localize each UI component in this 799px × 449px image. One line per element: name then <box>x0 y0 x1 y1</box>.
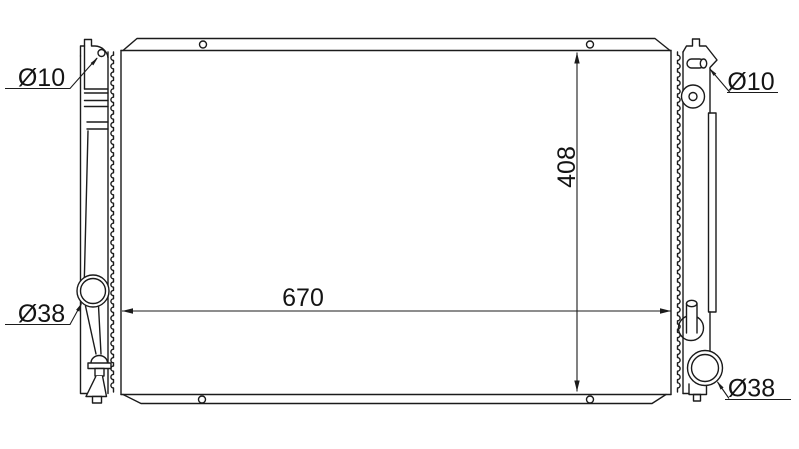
right-tank <box>679 39 723 401</box>
callout-port-bottom-left: Ø38 <box>5 300 82 328</box>
dim-height-arrow-top <box>574 53 579 64</box>
pipe-top-right-opening <box>700 59 706 68</box>
radiator-diagram: 670 408 Ø10 Ø10 Ø38 Ø38 <box>0 0 799 449</box>
left-crimp-edge <box>108 52 114 394</box>
mount-hole-top-right <box>587 41 594 48</box>
left-tank-molding-line <box>84 131 88 292</box>
bleed-hole-top-left <box>98 50 105 57</box>
mount-hole-bottom-right <box>587 396 594 403</box>
port-bottom-right-label: Ø38 <box>728 375 775 403</box>
bottom-flange <box>121 395 671 404</box>
left-drain-tube-lines <box>86 306 102 354</box>
mount-hole-bottom-left <box>199 396 206 403</box>
dim-width-arrow-right <box>660 308 671 313</box>
right-crimp-teeth <box>678 52 681 392</box>
radiator-drawing: 670 408 Ø10 Ø10 Ø38 Ø38 <box>0 0 799 449</box>
port-top-right-label: Ø10 <box>727 68 774 96</box>
dim-height-label: 408 <box>553 146 581 188</box>
port-top-left-label: Ø10 <box>18 64 65 92</box>
dimension-height: 408 <box>553 53 581 392</box>
pipe-bottom-left-outer <box>77 275 109 307</box>
mounting-boss-hole-outer <box>682 85 705 108</box>
callout-port-bottom-right: Ø38 <box>717 375 791 403</box>
callout-port-top-right: Ø10 <box>709 68 778 96</box>
left-crimp-teeth <box>111 52 114 392</box>
left-tank <box>77 40 111 404</box>
dimension-width: 670 <box>122 284 671 314</box>
left-tank-ribs <box>85 89 109 129</box>
pipe-bottom-right-outer <box>688 351 723 386</box>
dim-width-arrow-left <box>122 308 133 313</box>
mount-hole-top-left <box>200 41 207 48</box>
right-crimp-edge <box>678 52 684 394</box>
dim-width-label: 670 <box>282 284 324 312</box>
dim-height-arrow-bottom <box>574 381 579 392</box>
right-tank-bracket <box>709 113 717 312</box>
port-bottom-left-label: Ø38 <box>18 300 65 328</box>
drain-plug <box>86 356 111 404</box>
top-flange <box>121 39 671 51</box>
